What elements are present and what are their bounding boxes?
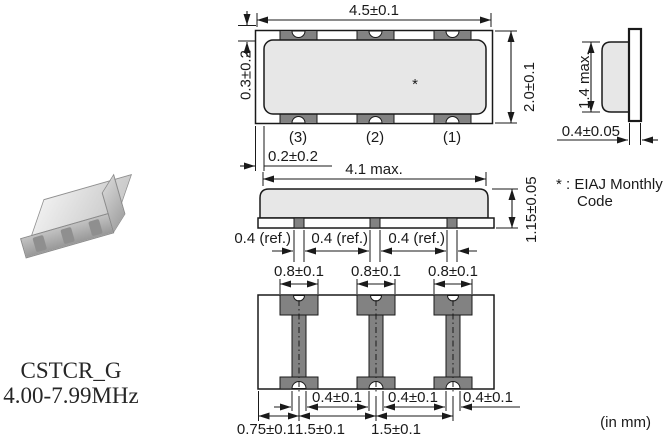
- side-electrode: [294, 218, 304, 228]
- pad-width-dim-label: 0.8±0.1: [351, 263, 401, 280]
- extension-line: [495, 31, 517, 123]
- total-height-dim-label: 1.15±0.05: [523, 176, 540, 243]
- pitch-dim-label: 1.5±0.1: [295, 421, 345, 438]
- eiaj-note: * : EIAJ Monthly Code: [556, 176, 663, 210]
- cap-profile: [602, 42, 629, 112]
- electrode-dim-label: 0.4 (ref.): [234, 230, 291, 247]
- pitch-dim-label: 0.75±0.1: [237, 421, 295, 438]
- product-frequency-range: 4.00-7.99MHz: [0, 383, 142, 408]
- width-dim-label: 4.5±0.1: [349, 2, 399, 19]
- substrate-profile: [629, 29, 641, 121]
- bottom-view: 0.8±0.1 0.8±0.1 0.8±0.1: [237, 263, 520, 438]
- cap-width-dim-label: 4.1 max.: [345, 161, 403, 178]
- eiaj-note-line1: * : EIAJ Monthly: [556, 176, 663, 193]
- pad-width-dim-label: 0.8±0.1: [428, 263, 478, 280]
- overhang-dim-label: 0.3±0.2: [238, 50, 255, 100]
- eiaj-note-line2: Code: [556, 193, 663, 210]
- side-electrode: [370, 218, 380, 228]
- units-label: (in mm): [600, 414, 651, 431]
- strip-width-dim-label: 0.4±0.1: [388, 389, 438, 406]
- marking-asterisk: *: [412, 76, 418, 93]
- terminal-3-label: (3): [289, 129, 307, 146]
- pitch-dim-label: 1.5±0.1: [371, 421, 421, 438]
- front-view: 4.1 max. 1.15±0.05 0.4 (ref.) 0.4 (ref.)…: [234, 161, 540, 262]
- cap-height-dim-label: 1.4 max.: [576, 51, 593, 109]
- extension-line: [280, 279, 472, 294]
- height-dim-label: 2.0±0.1: [521, 62, 538, 112]
- margin-dim-label: 0.2±0.2: [268, 148, 318, 165]
- substrate-thickness-dim-label: 0.4±0.05: [562, 123, 620, 140]
- terminal-2-label: (2): [366, 129, 384, 146]
- strip-width-dim-label: 0.4±0.1: [312, 389, 362, 406]
- product-label: CSTCR_G 4.00-7.99MHz: [0, 358, 142, 408]
- top-view: * (3) (2) (1) 4.5±0.1 0.3±0.2 0.2±0.2 2.…: [238, 2, 539, 171]
- resonator-body: [264, 40, 486, 114]
- side-view: 1.4 max. 0.4±0.05: [557, 29, 658, 145]
- extension-line: [256, 126, 265, 171]
- side-electrode: [447, 218, 457, 228]
- extension-line: [238, 26, 256, 42]
- cap-front: [260, 189, 488, 218]
- terminal-1-label: (1): [443, 129, 461, 146]
- extension-line: [630, 123, 641, 145]
- strip-width-dim-label: 0.4±0.1: [463, 389, 513, 406]
- electrode-dim-label: 0.4 (ref.): [388, 230, 445, 247]
- extension-line: [492, 189, 518, 228]
- dimensions-drawing-panel: * (3) (2) (1) 4.5±0.1 0.3±0.2 0.2±0.2 2.…: [0, 0, 672, 443]
- electrode-dim-label: 0.4 (ref.): [311, 230, 368, 247]
- pad-width-dim-label: 0.8±0.1: [274, 263, 324, 280]
- product-series: CSTCR_G: [0, 358, 142, 383]
